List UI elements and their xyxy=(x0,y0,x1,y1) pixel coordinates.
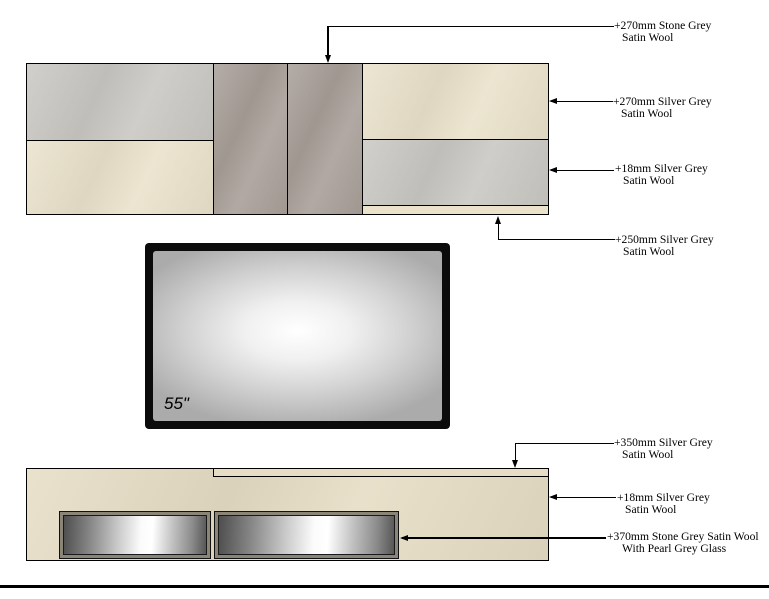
callout-250mm-silver-grey: +250mm Silver Grey Satin Wool xyxy=(615,234,714,259)
callout-text: Satin Wool xyxy=(615,246,714,258)
panel-silver-top-shelf-strip xyxy=(213,468,549,477)
callout-text: Satin Wool xyxy=(614,449,713,461)
glass-door-1-pearl-grey-glass xyxy=(63,515,207,555)
tv-55-inch: 55" xyxy=(145,243,450,429)
arrow-left-icon xyxy=(549,494,557,500)
callout-270mm-stone-grey: +270mm Stone Grey Satin Wool xyxy=(614,20,711,45)
callout-text: Satin Wool xyxy=(615,175,708,187)
callout-350mm-silver-grey: +350mm Silver Grey Satin Wool xyxy=(614,437,713,462)
panel-stone-grey-divider-1 xyxy=(213,63,289,215)
arrow-up-icon xyxy=(495,216,501,224)
leader-line xyxy=(551,497,616,499)
arrow-down-icon xyxy=(325,55,331,63)
drawing-footer-line xyxy=(0,585,769,588)
leader-line xyxy=(551,170,614,172)
arrow-left-icon xyxy=(400,535,408,541)
callout-370mm-stone-grey-pearl-glass: +370mm Stone Grey Satin Wool With Pearl … xyxy=(607,531,759,556)
leader-line xyxy=(515,443,517,462)
callout-18mm-silver-grey-top: +18mm Silver Grey Satin Wool xyxy=(615,163,708,188)
callout-text: Satin Wool xyxy=(617,504,710,516)
callout-text: With Pearl Grey Glass xyxy=(607,543,759,555)
leader-line xyxy=(515,443,614,445)
panel-cream-shelf-strip-right xyxy=(362,205,549,215)
leader-line xyxy=(327,26,329,58)
leader-line xyxy=(498,223,500,240)
leader-line xyxy=(402,537,606,539)
leader-line xyxy=(498,239,615,241)
callout-270mm-silver-grey: +270mm Silver Grey Satin Wool xyxy=(613,96,712,121)
panel-cream-upper-right xyxy=(362,63,549,140)
callout-text: Satin Wool xyxy=(614,32,711,44)
glass-door-2-pearl-grey-glass xyxy=(218,515,395,555)
tv-size-label: 55" xyxy=(164,394,189,414)
callout-18mm-silver-grey-bottom: +18mm Silver Grey Satin Wool xyxy=(617,492,710,517)
glass-door-2 xyxy=(214,511,399,559)
leader-line xyxy=(551,101,613,103)
elevation-drawing: 55" +270mm Stone Grey Satin Wool +270mm … xyxy=(0,0,769,599)
arrow-down-icon xyxy=(512,460,518,468)
panel-silver-grey-upper-left xyxy=(26,63,214,141)
panel-silver-grey-mid-right xyxy=(362,139,549,207)
panel-stone-grey-divider-2 xyxy=(287,63,363,215)
arrow-left-icon xyxy=(549,167,557,173)
leader-line xyxy=(327,26,614,28)
tv-screen: 55" xyxy=(153,251,442,421)
arrow-left-icon xyxy=(549,98,557,104)
callout-text: Satin Wool xyxy=(613,108,712,120)
glass-door-1 xyxy=(59,511,211,559)
panel-cream-lower-left xyxy=(26,140,214,215)
